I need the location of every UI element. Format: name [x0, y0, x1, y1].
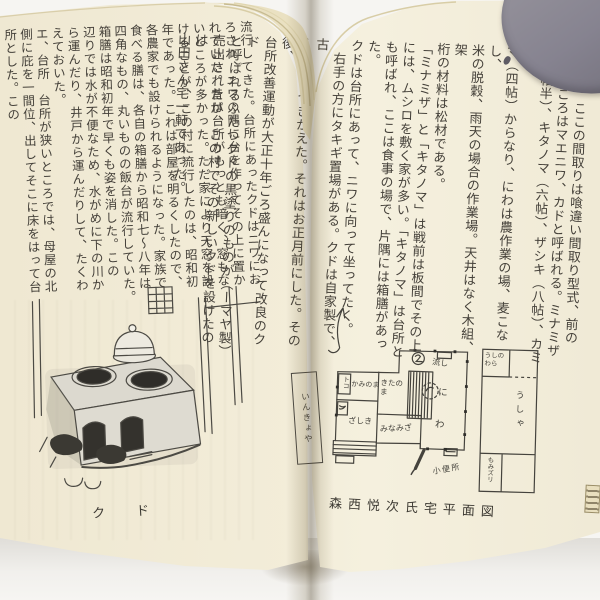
room-label-minamiza: みなみざ — [380, 422, 413, 435]
room-label-ushiya: うしゃ — [513, 390, 527, 432]
room-label-niwa-wa: わ — [435, 416, 445, 430]
room-label-momizuri: もみズリ — [483, 456, 494, 482]
room-label-zashiki: ざしき — [348, 415, 372, 427]
room-label-kaminoma: かみのま — [351, 379, 379, 390]
floor-plan-barn: うしのわら うしゃ もみズリ — [475, 343, 543, 497]
room-label-niwa-ni: に — [438, 384, 448, 398]
room-label-kitanoma: きたのま — [380, 378, 405, 397]
page-edge-tab — [584, 485, 600, 514]
room-label-toko: トコ — [339, 376, 349, 389]
entrance-arrow — [415, 449, 424, 468]
illustration-caption: ク ド — [92, 499, 159, 521]
open-book-photo: トコ かみのま きたのま ざしき みなみざ 流し に わ 小便所 いんきょや う… — [0, 0, 600, 600]
annex-label: いんきょや — [299, 391, 315, 444]
